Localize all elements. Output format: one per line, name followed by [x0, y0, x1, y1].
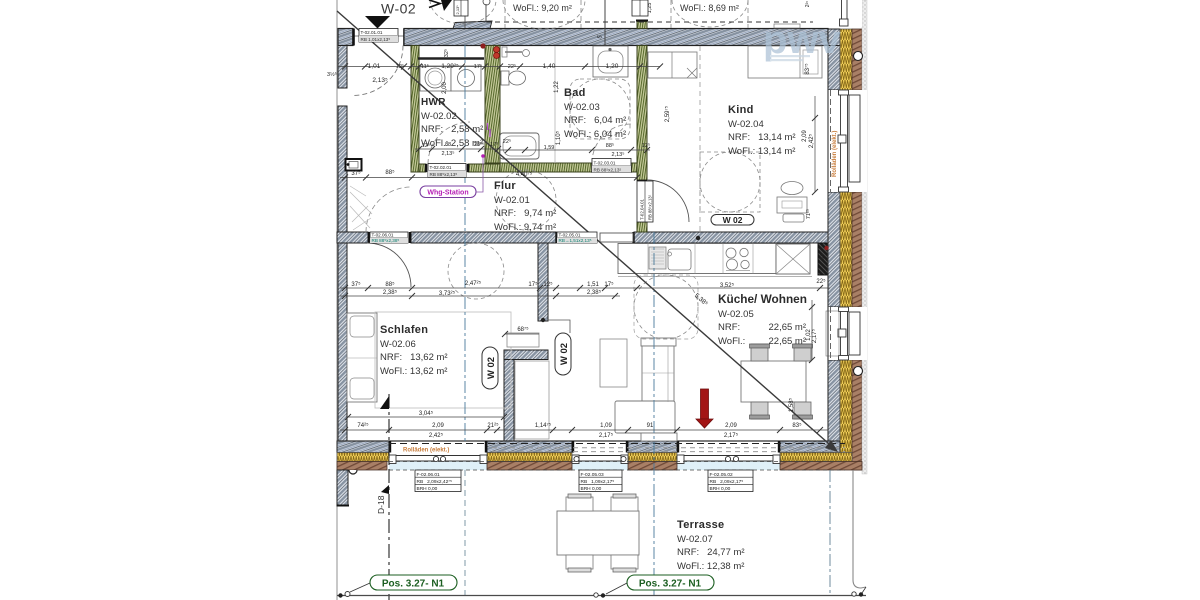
svg-text:RB 2,09x2,17⁵: RB 2,09x2,17⁵: [710, 479, 744, 485]
svg-text:22⁵: 22⁵: [508, 63, 516, 70]
svg-text:88⁵: 88⁵: [385, 169, 395, 176]
svg-text:3,52⁵: 3,52⁵: [720, 282, 735, 289]
svg-text:T-02.01.01: T-02.01.01: [361, 30, 383, 35]
svg-text:WoFl.: 2,58 m²: WoFl.: 2,58 m²: [421, 138, 483, 149]
svg-text:2²⁵: 2²⁵: [805, 1, 811, 8]
svg-text:3,73²⁵: 3,73²⁵: [439, 290, 456, 297]
svg-text:83⁵: 83⁵: [792, 422, 802, 429]
svg-text:2,09: 2,09: [802, 130, 808, 142]
svg-text:W-02.04: W-02.04: [728, 119, 764, 130]
svg-text:NRF: 6,04 m²: NRF: 6,04 m²: [564, 115, 626, 126]
svg-text:Kind: Kind: [728, 104, 754, 116]
svg-text:BRH 0,00: BRH 0,00: [581, 486, 602, 492]
svg-text:WoFl.: 12,38 m²: WoFl.: 12,38 m²: [677, 561, 744, 572]
svg-text:W-02.01: W-02.01: [494, 195, 530, 206]
svg-text:RB 2,09x2,42⁷⁵: RB 2,09x2,42⁷⁵: [417, 479, 452, 485]
svg-text:1,20: 1,20: [606, 63, 619, 70]
svg-text:W-02.06: W-02.06: [380, 339, 416, 350]
svg-text:WoFl.: 6,04 m²: WoFl.: 6,04 m²: [564, 129, 626, 140]
svg-text:1,09: 1,09: [600, 423, 612, 429]
svg-text:1,01: 1,01: [368, 63, 381, 70]
svg-text:74²⁵: 74²⁵: [357, 422, 369, 429]
svg-text:BRH 0,00: BRH 0,00: [417, 486, 438, 492]
svg-text:2,47²⁵: 2,47²⁵: [465, 280, 482, 287]
svg-text:T-02.05.01: T-02.05.01: [559, 232, 581, 237]
svg-text:1,59: 1,59: [544, 145, 555, 151]
svg-text:T-02.04.01: T-02.04.01: [640, 198, 645, 220]
svg-text:22,65 m²: 22,65 m²: [769, 336, 807, 347]
svg-text:2,38⁵: 2,38⁵: [383, 289, 398, 296]
svg-text:68⁷⁵: 68⁷⁵: [517, 326, 529, 333]
svg-text:Flur: Flur: [494, 180, 516, 192]
svg-text:22⁵: 22⁵: [503, 138, 511, 145]
svg-text:W-02.07: W-02.07: [677, 534, 713, 545]
svg-text:2,13⁵: 2,13⁵: [612, 151, 625, 158]
svg-text:RB 1,09x2,17⁵: RB 1,09x2,17⁵: [581, 479, 615, 485]
svg-text:Terrasse: Terrasse: [677, 519, 724, 531]
svg-text:HWR: HWR: [421, 97, 446, 108]
svg-text:2,00: 2,00: [442, 82, 448, 94]
svg-text:WoFl.: 8,69 m²: WoFl.: 8,69 m²: [680, 3, 739, 13]
svg-text:17⁵: 17⁵: [474, 63, 482, 70]
svg-text:T-02.02.01: T-02.02.01: [430, 165, 452, 170]
svg-text:W-02: W-02: [381, 1, 416, 17]
svg-text:37⁵: 37⁵: [351, 170, 361, 177]
svg-text:Pos. 3.27- N1: Pos. 3.27- N1: [382, 579, 445, 590]
svg-text:88⁵: 88⁵: [606, 142, 614, 149]
svg-text:Bad: Bad: [564, 87, 586, 99]
svg-text:W-02.02: W-02.02: [421, 111, 457, 122]
svg-text:1,40: 1,40: [543, 63, 556, 70]
svg-text:12⁵: 12⁵: [642, 142, 650, 149]
svg-text:88⁵: 88⁵: [385, 281, 395, 288]
svg-text:Rolläden (elekt.): Rolläden (elekt.): [832, 131, 838, 177]
svg-text:2,09: 2,09: [432, 423, 444, 429]
svg-text:37⁵: 37⁵: [351, 281, 361, 288]
svg-text:71²⁵: 71²⁵: [805, 209, 812, 219]
svg-text:RB 88⁵x2,38⁵: RB 88⁵x2,38⁵: [372, 238, 400, 243]
svg-text:3½⁵: 3½⁵: [327, 71, 337, 78]
svg-text:F-02.06.01: F-02.06.01: [417, 472, 441, 478]
svg-text:17⁵: 17⁵: [528, 281, 538, 288]
svg-text:Whg-Station: Whg-Station: [427, 190, 468, 197]
svg-text:WoFl.: 13,14 m²: WoFl.: 13,14 m²: [728, 146, 795, 157]
svg-text:12⁵: 12⁵: [543, 281, 553, 288]
svg-text:RB 88⁵x2,13⁵: RB 88⁵x2,13⁵: [594, 167, 622, 172]
svg-text:WoFl.: 13,62 m²: WoFl.: 13,62 m²: [380, 366, 447, 377]
svg-text:2,38⁵: 2,38⁵: [587, 289, 602, 296]
svg-text:1,29²⁵: 1,29²⁵: [441, 63, 459, 70]
svg-text:1,14⁷⁵: 1,14⁷⁵: [535, 422, 552, 429]
svg-text:2,42⁵: 2,42⁵: [808, 133, 815, 148]
svg-text:22⁵: 22⁵: [816, 278, 826, 285]
svg-text:4,40⁷⁵: 4,40⁷⁵: [516, 171, 533, 178]
svg-text:2,17⁵: 2,17⁵: [599, 432, 614, 439]
svg-text:12⁵: 12⁵: [396, 63, 404, 70]
svg-text:Küche/ Wohnen: Küche/ Wohnen: [718, 292, 807, 306]
svg-text:11⁵: 11⁵: [421, 63, 429, 70]
svg-text:32⁵: 32⁵: [443, 49, 450, 57]
svg-text:T-02.03.01: T-02.03.01: [594, 160, 616, 165]
svg-text:NRF: 2,58 m²: NRF: 2,58 m²: [421, 124, 483, 135]
svg-text:W-02.03: W-02.03: [564, 102, 600, 113]
svg-text:83⁷⁵: 83⁷⁵: [804, 63, 811, 75]
svg-text:D-18: D-18: [376, 495, 386, 514]
svg-text:RB 88⁵x2,13⁵: RB 88⁵x2,13⁵: [648, 194, 653, 220]
svg-text:RB→1,51x2,13⁵: RB→1,51x2,13⁵: [559, 238, 592, 243]
svg-text:NRF:: NRF:: [718, 322, 740, 333]
svg-text:NRF: 13,14 m²: NRF: 13,14 m²: [728, 132, 796, 143]
svg-text:64: 64: [820, 254, 826, 260]
svg-text:2,13⁵: 2,13⁵: [442, 150, 455, 157]
svg-text:2,13⁵: 2,13⁵: [372, 77, 388, 84]
svg-text:W 02: W 02: [486, 357, 497, 379]
svg-text:91: 91: [647, 423, 654, 429]
svg-text:W-02.05: W-02.05: [718, 309, 754, 320]
svg-text:2,13⁵: 2,13⁵: [455, 5, 460, 15]
svg-text:WoFl.: 9,74 m²: WoFl.: 9,74 m²: [494, 222, 556, 233]
svg-text:T-02.06.01: T-02.06.01: [372, 232, 394, 237]
svg-text:1,10⁵: 1,10⁵: [555, 130, 562, 145]
svg-text:2,09: 2,09: [725, 423, 737, 429]
svg-text:1,58⁵: 1,58⁵: [788, 397, 795, 412]
svg-text:F-02.05.02: F-02.05.02: [710, 472, 734, 478]
svg-text:RB 88⁵x2,13⁵: RB 88⁵x2,13⁵: [430, 172, 458, 177]
svg-text:2,17⁵: 2,17⁵: [724, 432, 739, 439]
svg-text:W 02: W 02: [723, 215, 743, 225]
svg-text:BRH 0,00: BRH 0,00: [710, 486, 731, 492]
svg-text:NRF: 24,77 m²: NRF: 24,77 m²: [677, 547, 745, 558]
svg-text:Schlafen: Schlafen: [380, 324, 428, 336]
svg-text:17⁵: 17⁵: [604, 281, 614, 288]
svg-text:W 02: W 02: [559, 343, 570, 365]
svg-text:22,65 m²: 22,65 m²: [769, 322, 807, 333]
svg-text:2,59⁷⁵: 2,59⁷⁵: [664, 105, 671, 122]
svg-text:WoFl.:: WoFl.:: [718, 336, 745, 347]
svg-text:F-02.05.03: F-02.05.03: [581, 472, 605, 478]
svg-text:2,42⁵: 2,42⁵: [429, 432, 444, 439]
svg-text:WoFl.: 9,20 m²: WoFl.: 9,20 m²: [513, 3, 572, 13]
svg-text:Pos. 3.27- N1: Pos. 3.27- N1: [639, 579, 702, 590]
svg-text:21²⁵: 21²⁵: [487, 422, 499, 429]
svg-text:NRF: 9,74 m²: NRF: 9,74 m²: [494, 208, 556, 219]
svg-text:NRF: 13,62 m²: NRF: 13,62 m²: [380, 352, 448, 363]
svg-text:1,51: 1,51: [587, 282, 599, 288]
svg-text:Rolläden (elekt.): Rolläden (elekt.): [403, 448, 449, 454]
svg-text:RB 1,01x2,13⁵: RB 1,01x2,13⁵: [361, 37, 391, 42]
svg-text:17³: 17³: [490, 142, 498, 148]
svg-text:1,22: 1,22: [554, 81, 560, 93]
svg-text:3,04⁵: 3,04⁵: [419, 410, 434, 417]
